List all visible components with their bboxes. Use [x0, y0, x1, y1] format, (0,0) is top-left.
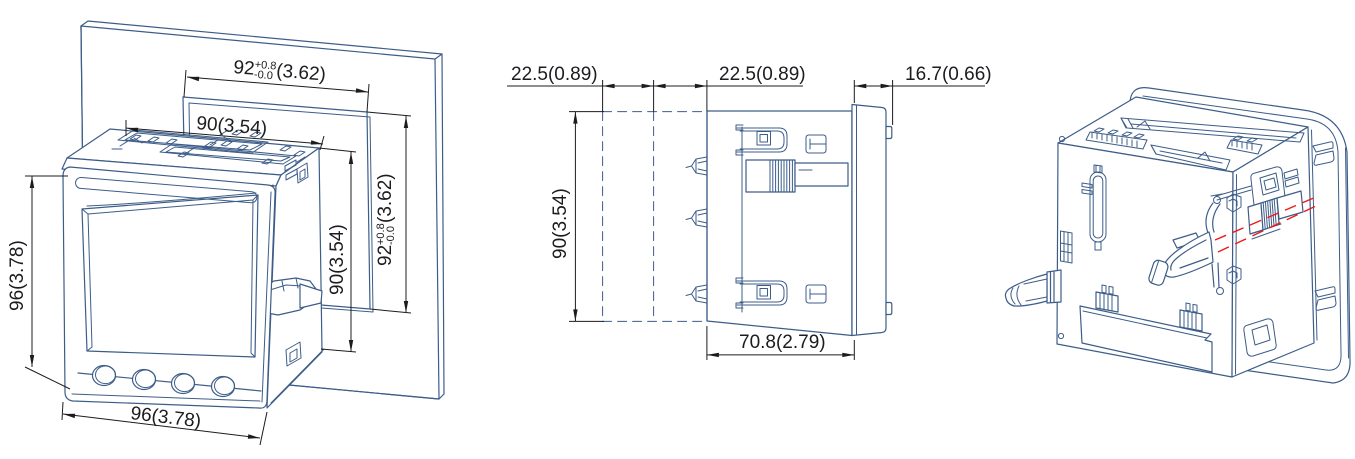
svg-text:90(3.54): 90(3.54) [550, 188, 571, 259]
svg-text:-0.0: -0.0 [385, 226, 397, 245]
svg-text:(3.62): (3.62) [375, 173, 396, 223]
svg-text:-0.0: -0.0 [253, 69, 273, 83]
svg-text:70.8(2.79): 70.8(2.79) [739, 332, 826, 353]
svg-text:90(3.54): 90(3.54) [327, 224, 348, 295]
svg-text:22.5(0.89): 22.5(0.89) [511, 64, 598, 85]
svg-text:92: 92 [375, 245, 396, 266]
svg-text:96(3.78): 96(3.78) [7, 240, 28, 311]
svg-text:16.7(0.66): 16.7(0.66) [905, 64, 992, 85]
svg-text:(3.62): (3.62) [275, 61, 326, 86]
svg-text:92: 92 [233, 57, 256, 80]
svg-text:22.5(0.89): 22.5(0.89) [719, 64, 806, 85]
